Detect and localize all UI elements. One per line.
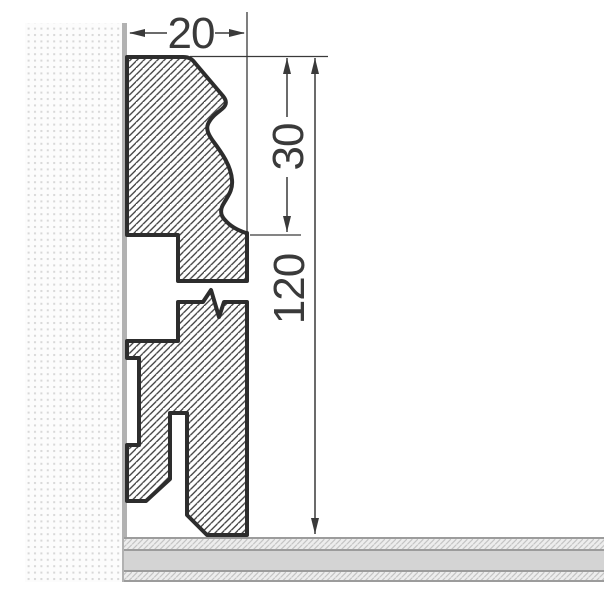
arrow-up-icon <box>311 58 319 74</box>
dimension-label-upper-section: 30 <box>264 124 313 171</box>
floor-middle-band <box>124 551 604 570</box>
floor-lower-screed <box>124 572 604 580</box>
arrow-down-icon <box>283 216 291 232</box>
wall-section <box>25 23 122 582</box>
dimension-label-total-height: 120 <box>265 254 314 324</box>
floor-divider-line <box>124 549 604 551</box>
skirting-profile-drawing: 20 30 120 <box>0 0 604 604</box>
floor-section <box>124 537 604 582</box>
arrow-down-icon <box>311 518 319 534</box>
dimension-upper-section: 30 <box>264 58 313 232</box>
skirting-profile-upper <box>127 57 247 281</box>
skirting-profile-lower <box>127 290 247 535</box>
dimension-label-width: 20 <box>168 9 215 58</box>
floor-upper-screed <box>124 539 604 549</box>
arrow-up-icon <box>283 58 291 74</box>
floor-divider-line <box>124 570 604 572</box>
floor-top-border <box>124 537 604 539</box>
arrow-left-icon <box>129 29 145 37</box>
technical-drawing-canvas: 20 30 120 <box>0 0 604 604</box>
dimension-width: 20 <box>129 9 245 58</box>
arrow-right-icon <box>229 29 245 37</box>
floor-bottom-border <box>124 580 604 582</box>
